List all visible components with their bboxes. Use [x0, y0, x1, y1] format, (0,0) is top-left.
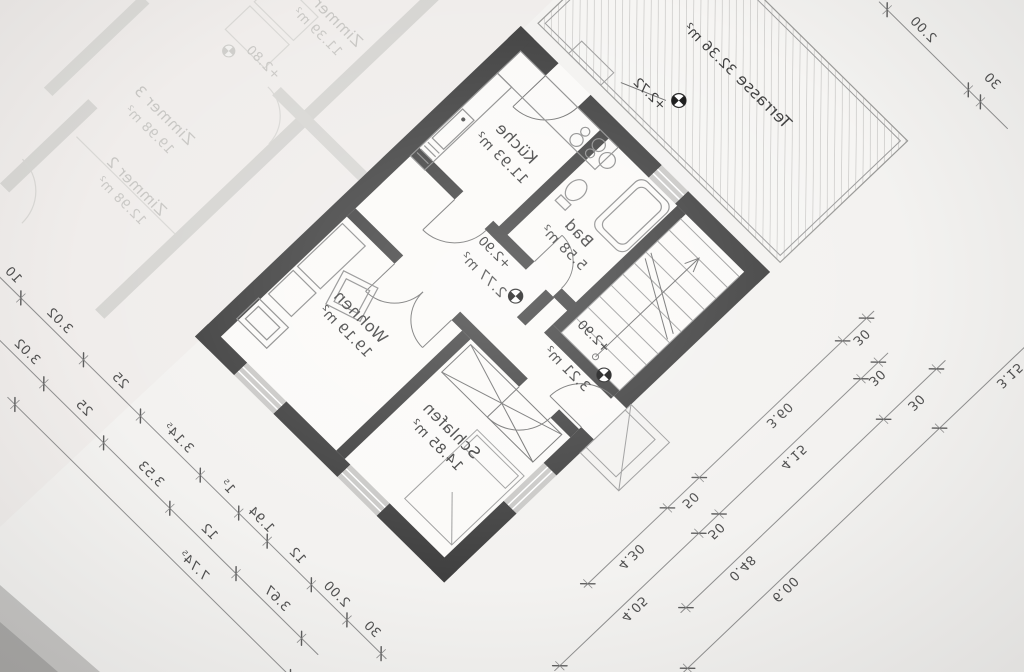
dim-label: 3.67 [260, 583, 293, 615]
dim-label: 30 [360, 618, 383, 641]
dim-label: 30 [904, 391, 927, 414]
dim-label: 3.60 [763, 399, 796, 431]
dim-label: 50 [704, 519, 727, 542]
dim-label: 3.53 [134, 458, 167, 490]
dim-label: 1.94 [244, 504, 277, 536]
dim-label: 4.05 [617, 592, 650, 624]
dim-label: 30 [865, 366, 888, 389]
dim-label: 2.00 [906, 14, 939, 46]
dim-label: 4.15 [777, 441, 810, 473]
dim-label: 30 [849, 325, 872, 348]
dim-label: 7.74⁵ [175, 548, 212, 584]
dim-label: 50 [678, 488, 701, 511]
dim-label: 12 [285, 544, 308, 567]
dim-label: 12 [197, 521, 220, 544]
dim-label: 3.14⁵ [159, 420, 196, 456]
floor-plan-drawing: Zimmer 1 11.39 m² +2.80 Zimmer 3 19.98 m… [0, 0, 1024, 672]
blueprint-photo: Zimmer 1 11.39 m² +2.80 Zimmer 3 19.98 m… [0, 0, 1024, 672]
dim-label: 2.00 [320, 578, 353, 610]
dim-label: 3.15 [993, 359, 1024, 391]
dim-label: 6.00 [768, 573, 801, 605]
dim-label: 0.48 [725, 551, 758, 583]
dim-label: 30 [980, 70, 1003, 93]
dim-label: 4.30 [614, 540, 647, 572]
